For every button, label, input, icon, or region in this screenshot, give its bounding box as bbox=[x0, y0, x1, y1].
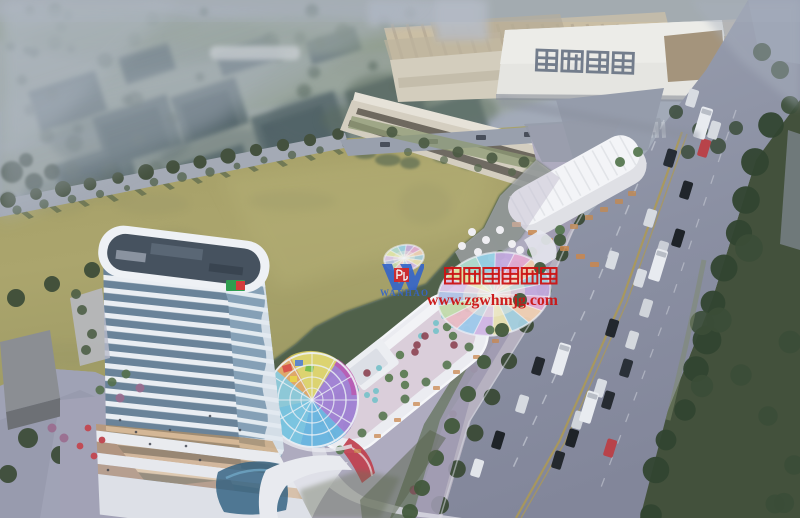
svg-text:WANHAO: WANHAO bbox=[380, 288, 429, 298]
svg-text:www.zgwhmjg.com: www.zgwhmjg.com bbox=[427, 292, 558, 309]
